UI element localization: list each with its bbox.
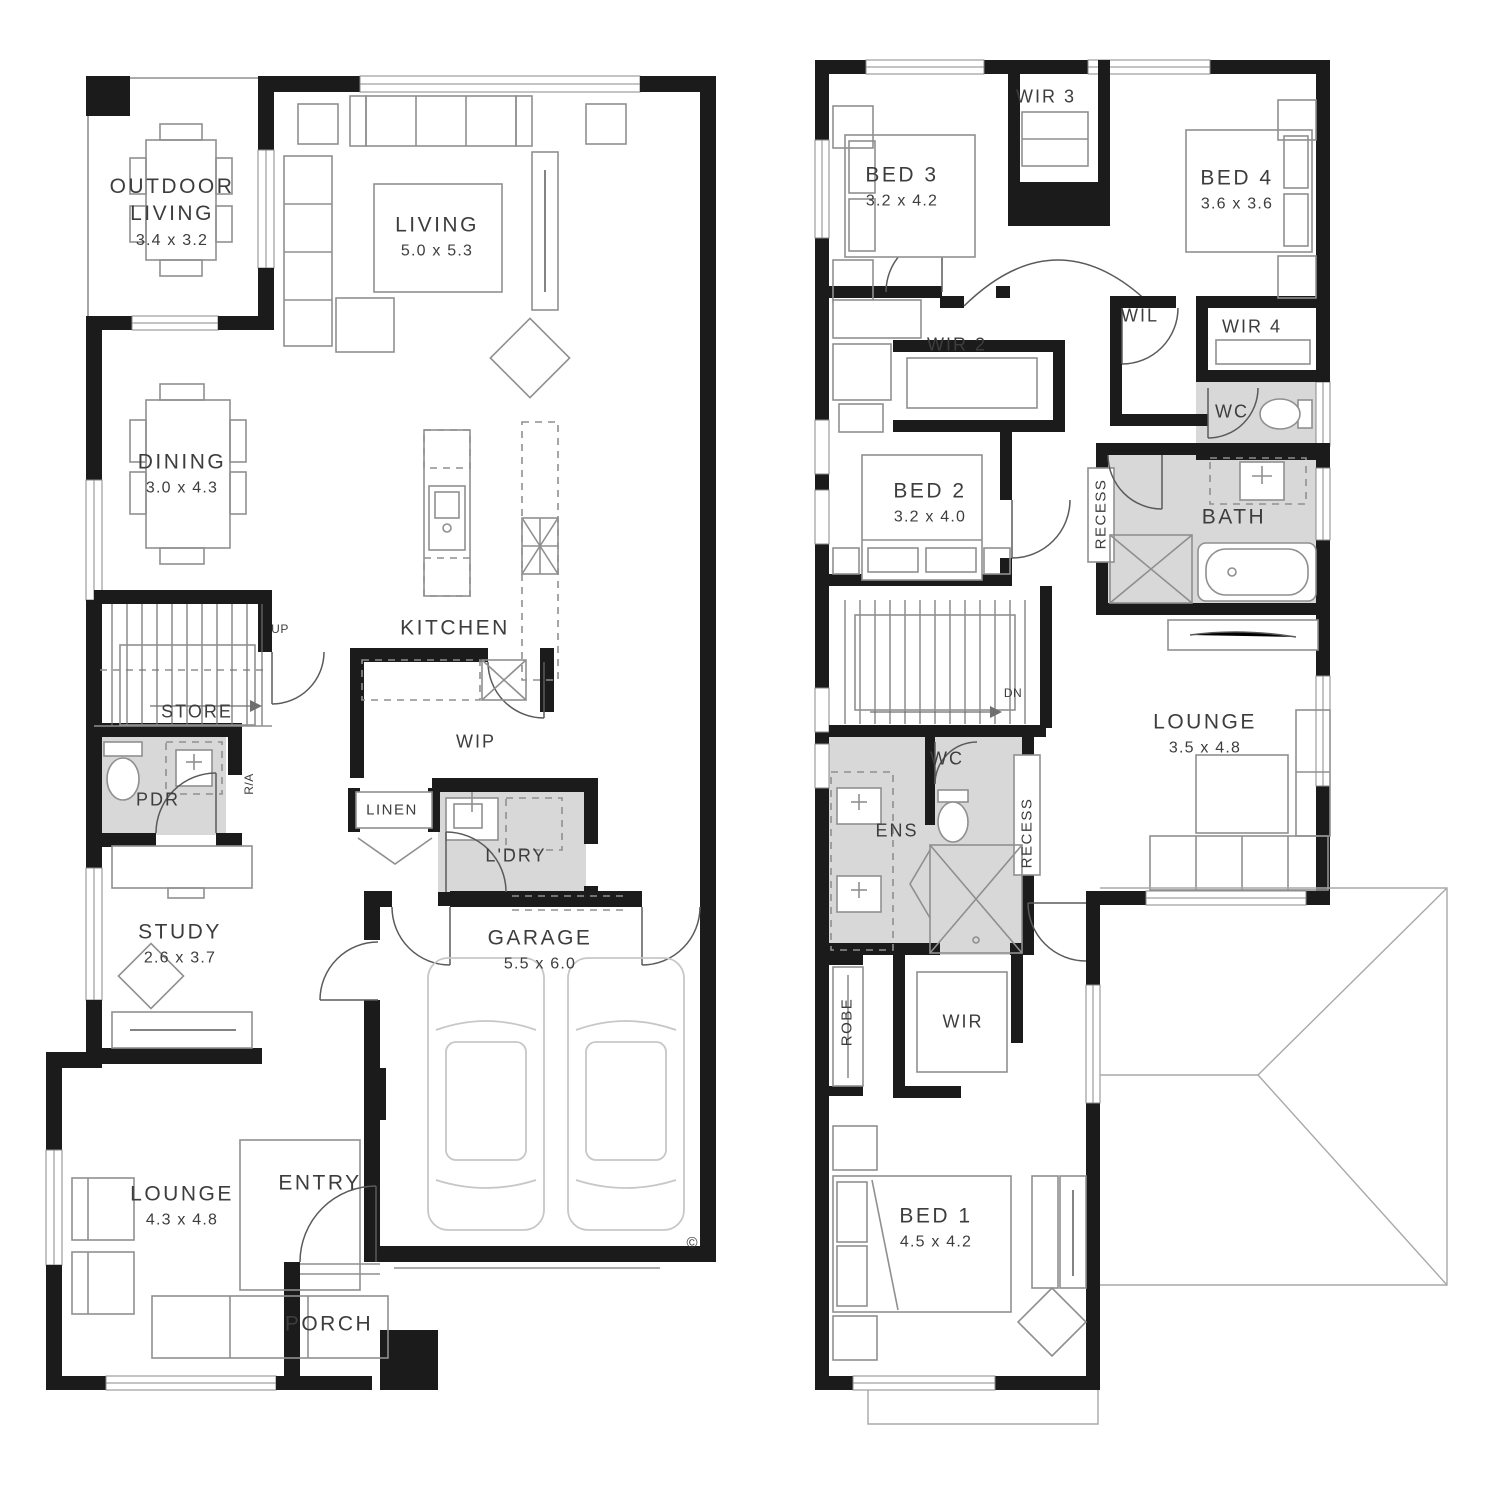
room-label-study: STUDY 2.6 x 3.7 <box>138 918 222 969</box>
room-label-recess-ens: RECESS <box>1017 798 1037 869</box>
copyright-symbol: © <box>686 1233 697 1253</box>
room-label-wir4: WIR 4 <box>1222 315 1282 338</box>
kitchen-sink-icon <box>429 486 465 550</box>
room-label-dining: DINING 3.0 x 4.3 <box>138 448 227 499</box>
room-label-ldry: L'DRY <box>485 844 546 867</box>
room-label-bed3: BED 3 3.2 x 4.2 <box>865 161 938 212</box>
room-label-ra: R/A <box>242 773 258 795</box>
room-label-wir: WIR <box>943 1010 984 1033</box>
room-label-wc-mid: WC <box>930 747 964 770</box>
room-label-wir2: WIR 2 <box>927 333 987 356</box>
room-label-linen: LINEN <box>366 800 418 820</box>
first-stairs <box>845 600 1025 724</box>
car-icon <box>568 958 684 1230</box>
room-label-up: UP <box>271 622 289 638</box>
room-label-wc-upper: WC <box>1215 400 1249 423</box>
car-icon <box>428 958 544 1230</box>
room-label-pdr: PDR <box>136 788 180 811</box>
room-label-wil: WIL <box>1121 304 1159 327</box>
room-label-ground-lounge: LOUNGE 4.3 x 4.8 <box>130 1180 234 1231</box>
room-label-ens: ENS <box>875 819 918 842</box>
toilet-icon <box>1260 399 1312 429</box>
room-label-entry: ENTRY <box>278 1169 361 1196</box>
room-label-garage: GARAGE 5.5 x 6.0 <box>488 924 593 975</box>
room-label-bath: BATH <box>1202 503 1266 530</box>
room-label-bed1: BED 1 4.5 x 4.2 <box>899 1202 972 1253</box>
room-label-bed2: BED 2 3.2 x 4.0 <box>893 477 966 528</box>
room-label-store: STORE <box>161 700 233 723</box>
room-label-bed4: BED 4 3.6 x 3.6 <box>1200 164 1273 215</box>
wip-fixtures <box>362 660 544 718</box>
room-label-kitchen: KITCHEN <box>400 614 510 641</box>
toilet-icon <box>938 790 968 842</box>
room-label-robe: ROBE <box>837 998 857 1047</box>
bathtub-icon <box>1198 543 1316 601</box>
room-label-porch: PORCH <box>285 1310 373 1337</box>
room-label-living: LIVING 5.0 x 5.3 <box>395 211 479 262</box>
floorplan-canvas: OUTDOOR LIVING 3.4 x 3.2 LIVING 5.0 x 5.… <box>0 0 1500 1500</box>
room-label-wir3: WIR 3 <box>1016 85 1076 108</box>
room-label-recess-bath: RECESS <box>1091 479 1111 550</box>
room-label-first-lounge: LOUNGE 3.5 x 4.8 <box>1153 708 1257 759</box>
cooktop-hatch <box>522 518 558 574</box>
room-label-outdoor-living: OUTDOOR LIVING 3.4 x 3.2 <box>97 173 247 251</box>
roof-outline <box>868 888 1447 1424</box>
room-label-wip: WIP <box>456 730 496 753</box>
room-label-dn: DN <box>1004 686 1022 702</box>
